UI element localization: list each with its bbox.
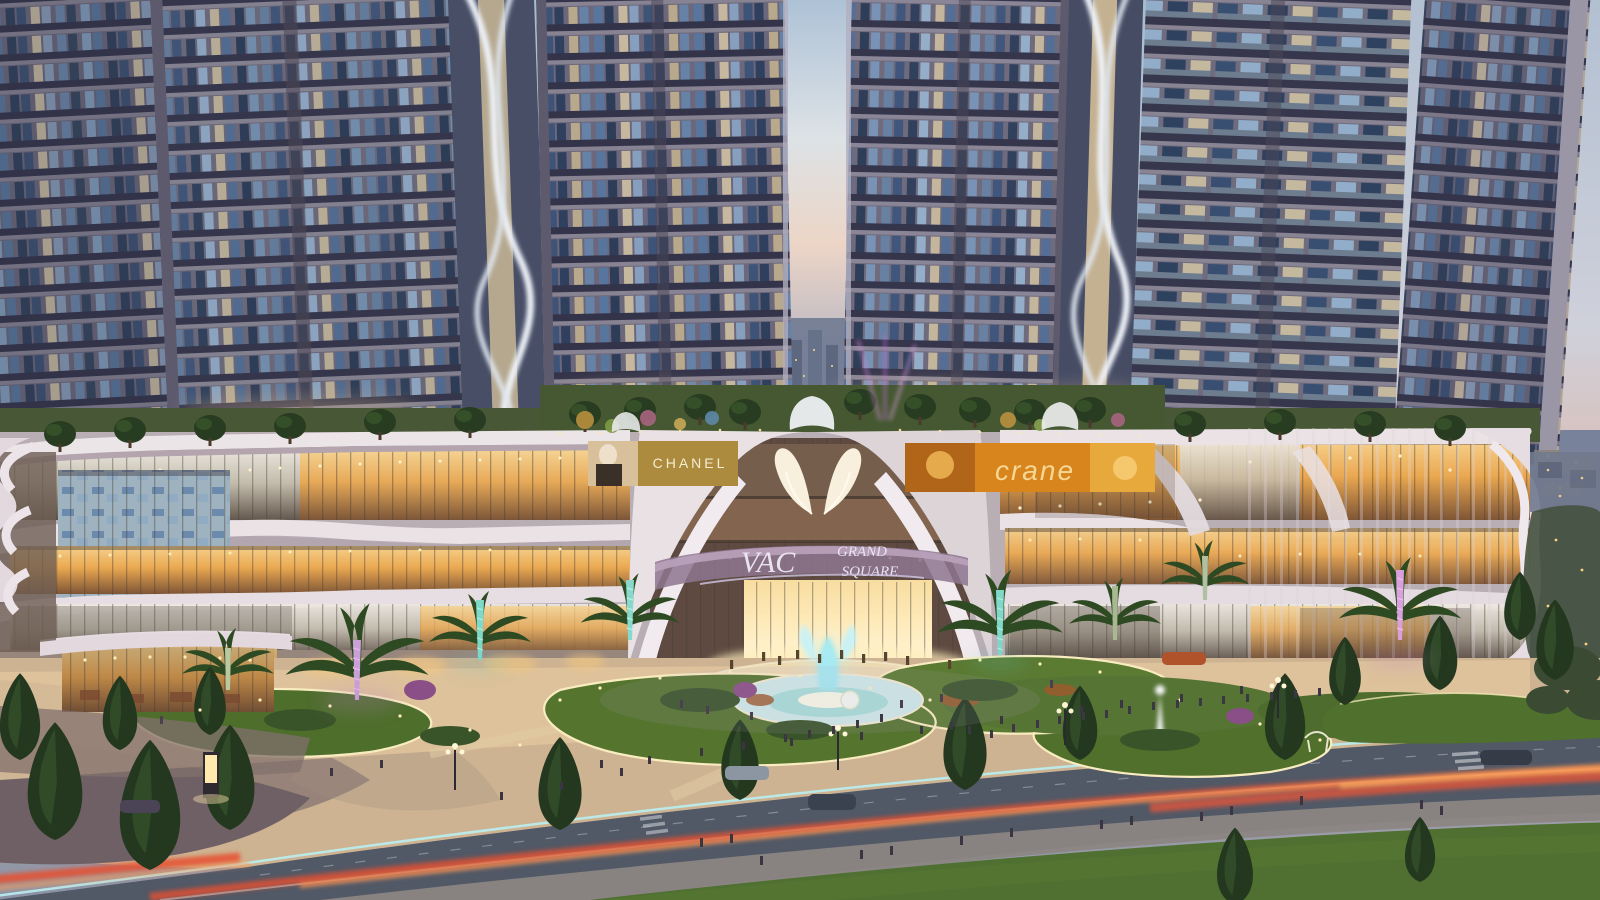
- svg-text:crane: crane: [995, 455, 1075, 486]
- svg-text:CHANEL: CHANEL: [653, 455, 728, 471]
- svg-text:SQUARE: SQUARE: [842, 564, 899, 580]
- svg-text:GRAND: GRAND: [837, 544, 887, 560]
- svg-text:VAC: VAC: [741, 546, 796, 579]
